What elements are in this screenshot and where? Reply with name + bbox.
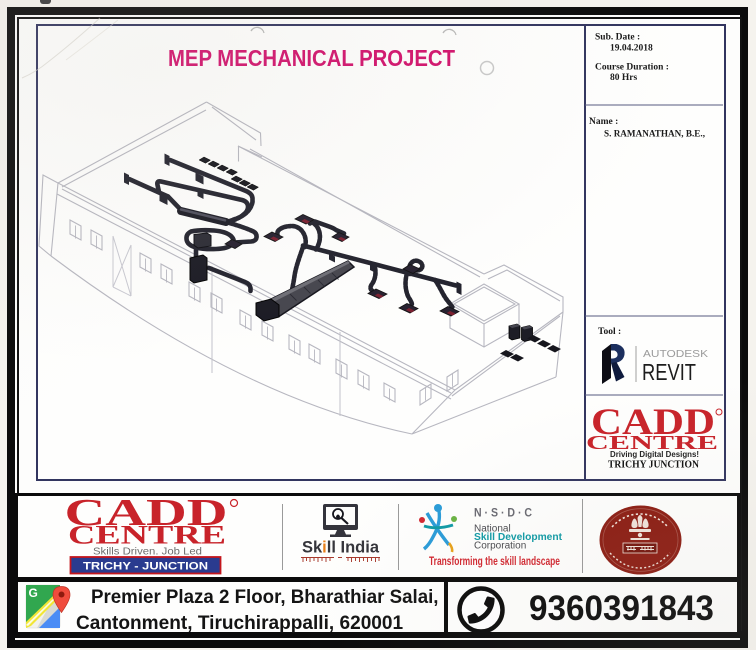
svg-text:Tool :: Tool : [598,327,621,337]
svg-text:Corporation: Corporation [474,541,526,552]
svg-text:Transforming the skill landsca: Transforming the skill landscape [429,556,560,568]
svg-text:19.04.2018: 19.04.2018 [610,44,653,54]
svg-text:Skill India: Skill India [302,539,380,557]
svg-text:Course Duration :: Course Duration : [595,63,669,73]
svg-text:Driving Digital Designs!: Driving Digital Designs! [610,450,699,459]
svg-text:G: G [29,586,38,600]
svg-text:Sub. Date :: Sub. Date : [595,33,640,43]
svg-text:REVIT: REVIT [642,359,696,385]
svg-text:N · S · D · C: N · S · D · C [474,508,532,520]
svg-text:Skills Driven. Job Led: Skills Driven. Job Led [93,546,202,558]
svg-text:80 Hrs: 80 Hrs [610,73,637,83]
svg-text:Name :: Name : [589,117,618,127]
svg-text:TRICHY - JUNCTION: TRICHY - JUNCTION [83,561,208,573]
svg-text:TRICHY JUNCTION: TRICHY JUNCTION [608,460,699,471]
svg-text:S. RAMANATHAN, B.E.,: S. RAMANATHAN, B.E., [604,129,706,140]
